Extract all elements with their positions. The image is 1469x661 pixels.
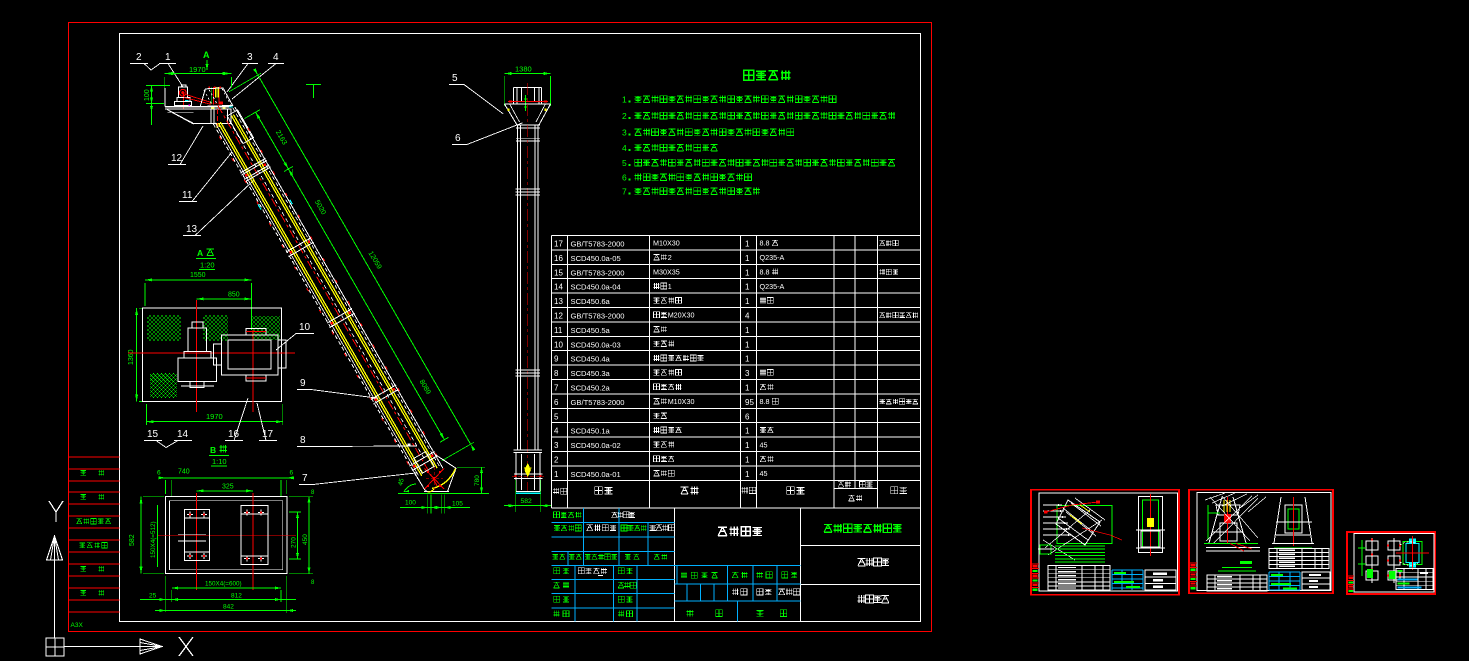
svg-text:4: 4 (622, 143, 627, 153)
svg-text:B: B (210, 445, 216, 455)
svg-text:10: 10 (554, 340, 563, 349)
svg-text:4: 4 (745, 312, 750, 321)
svg-text:GB/T5783-2000: GB/T5783-2000 (571, 312, 625, 321)
svg-text:6: 6 (745, 412, 750, 421)
svg-text:105: 105 (452, 501, 463, 508)
svg-text:Q235-A: Q235-A (760, 253, 785, 262)
svg-text:14: 14 (177, 429, 189, 440)
svg-text:GB/T5783-2000: GB/T5783-2000 (571, 240, 625, 249)
svg-text:2: 2 (136, 52, 142, 63)
svg-text:150X4(=600): 150X4(=600) (205, 581, 242, 588)
svg-text:1: 1 (745, 340, 750, 349)
svg-text:1: 1 (745, 283, 750, 292)
svg-text:15: 15 (147, 429, 159, 440)
svg-text:3: 3 (554, 441, 559, 450)
svg-text:582: 582 (521, 498, 533, 505)
svg-text:270: 270 (291, 537, 298, 548)
svg-text:4: 4 (273, 52, 279, 63)
svg-text:1:20: 1:20 (200, 261, 215, 270)
svg-text:SCD450.4a: SCD450.4a (571, 355, 611, 364)
svg-text:M10X30: M10X30 (653, 239, 680, 248)
svg-text:9: 9 (554, 355, 559, 364)
svg-text:1: 1 (745, 268, 750, 277)
svg-text:1: 1 (165, 52, 171, 63)
svg-text:1: 1 (745, 470, 750, 479)
svg-text:1: 1 (745, 240, 750, 249)
svg-text:3: 3 (622, 128, 627, 138)
svg-text:4: 4 (554, 427, 559, 436)
svg-text:A3X: A3X (71, 622, 84, 629)
svg-text:11: 11 (182, 190, 193, 201)
svg-text:8.8: 8.8 (760, 268, 770, 277)
svg-text:SCD450.0a-01: SCD450.0a-01 (571, 470, 621, 479)
svg-text:1: 1 (668, 282, 672, 291)
svg-text:1: 1 (745, 456, 750, 465)
svg-text:SCD450.1a: SCD450.1a (571, 427, 611, 436)
svg-text:11: 11 (554, 326, 563, 335)
svg-text:812: 812 (231, 593, 242, 600)
svg-text:842: 842 (223, 604, 234, 611)
svg-text:SCD450.3a: SCD450.3a (571, 369, 611, 378)
svg-text:16: 16 (554, 254, 563, 263)
svg-text:1: 1 (554, 470, 559, 479)
svg-text:6: 6 (554, 398, 559, 407)
svg-text:17: 17 (554, 240, 563, 249)
svg-text:850: 850 (228, 292, 240, 299)
svg-text:5: 5 (554, 412, 559, 421)
svg-text:M30X35: M30X35 (653, 268, 680, 277)
svg-text:12: 12 (554, 312, 563, 321)
svg-text:95: 95 (745, 398, 754, 407)
svg-text:100: 100 (144, 89, 151, 101)
svg-text:45: 45 (760, 469, 768, 478)
svg-text:1: 1 (745, 254, 750, 263)
svg-text:13: 13 (554, 297, 563, 306)
svg-text:7: 7 (622, 187, 627, 197)
svg-text:SCD450.6a: SCD450.6a (571, 297, 611, 306)
svg-text:8: 8 (300, 435, 306, 446)
svg-text:GB/T5783-2000: GB/T5783-2000 (571, 268, 625, 277)
svg-text:M10X30: M10X30 (668, 397, 695, 406)
svg-text:6: 6 (290, 470, 294, 477)
svg-text:6: 6 (455, 133, 461, 144)
svg-text:1:10: 1:10 (212, 457, 227, 466)
svg-text:2: 2 (668, 253, 672, 262)
svg-text:15: 15 (554, 268, 563, 277)
svg-text:1: 1 (745, 297, 750, 306)
svg-text:SCD450.5a: SCD450.5a (571, 326, 611, 335)
svg-text:1970: 1970 (206, 412, 223, 421)
svg-text:1360: 1360 (128, 349, 135, 365)
svg-text:SCD450.0a-02: SCD450.0a-02 (571, 441, 621, 450)
svg-text:7: 7 (302, 473, 308, 484)
svg-text:13: 13 (186, 224, 198, 235)
svg-text:A: A (197, 248, 203, 258)
svg-text:3: 3 (745, 369, 750, 378)
svg-text:SCD450.0a-05: SCD450.0a-05 (571, 254, 621, 263)
svg-text:450: 450 (302, 534, 309, 545)
svg-text:1: 1 (745, 441, 750, 450)
svg-text:16: 16 (228, 429, 240, 440)
svg-text:1550: 1550 (190, 272, 206, 279)
svg-text:325: 325 (222, 484, 234, 491)
svg-text:1: 1 (745, 355, 750, 364)
svg-text:150X4(=512): 150X4(=512) (150, 521, 157, 558)
svg-text:740: 740 (178, 469, 190, 476)
svg-text:7: 7 (554, 384, 559, 393)
svg-text:2: 2 (554, 456, 559, 465)
svg-text:780: 780 (474, 475, 481, 486)
svg-text:2: 2 (622, 111, 627, 121)
svg-text:8.8: 8.8 (760, 397, 770, 406)
svg-text:5: 5 (622, 158, 627, 168)
svg-text:8.8: 8.8 (760, 239, 770, 248)
svg-text:9: 9 (300, 378, 306, 389)
svg-text:25: 25 (149, 593, 157, 600)
svg-text:6: 6 (622, 173, 627, 183)
svg-text:45: 45 (760, 440, 768, 449)
svg-text:Q235-A: Q235-A (760, 282, 785, 291)
svg-text:100: 100 (405, 500, 416, 507)
svg-text:582: 582 (129, 534, 136, 546)
svg-text:3: 3 (247, 52, 253, 63)
svg-text:6: 6 (157, 470, 161, 477)
svg-text:SCD450.2a: SCD450.2a (571, 384, 611, 393)
svg-text:A: A (203, 50, 210, 60)
svg-text:SCD450.0a-04: SCD450.0a-04 (571, 283, 621, 292)
svg-text:1: 1 (745, 384, 750, 393)
svg-text:SCD450.0a-03: SCD450.0a-03 (571, 340, 621, 349)
svg-text:1: 1 (622, 95, 627, 105)
svg-text:GB/T5783-2000: GB/T5783-2000 (571, 398, 625, 407)
svg-text:14: 14 (554, 283, 563, 292)
svg-text:1: 1 (745, 326, 750, 335)
svg-text:8: 8 (554, 369, 559, 378)
svg-text:1: 1 (745, 427, 750, 436)
svg-text:1380: 1380 (515, 65, 532, 74)
svg-text:M20X30: M20X30 (668, 311, 695, 320)
svg-text:5: 5 (452, 73, 458, 84)
svg-text:1970: 1970 (189, 65, 206, 74)
svg-text:10: 10 (299, 322, 311, 333)
